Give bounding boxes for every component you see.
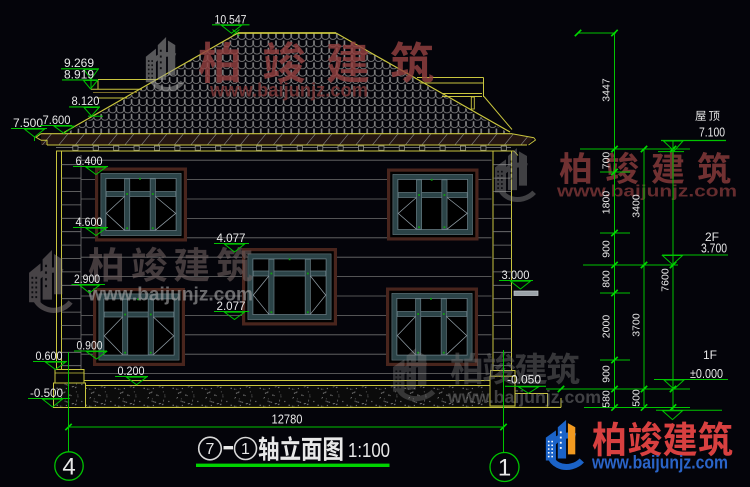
svg-text:1: 1 xyxy=(241,441,250,458)
svg-text:www.baijunjz.com: www.baijunjz.com xyxy=(209,80,368,102)
svg-text:3.700: 3.700 xyxy=(701,242,727,256)
svg-text:4: 4 xyxy=(62,454,75,481)
svg-text:2000: 2000 xyxy=(601,315,613,339)
svg-text:9.269: 9.269 xyxy=(64,58,94,70)
svg-text:7: 7 xyxy=(206,441,215,458)
svg-text:7600: 7600 xyxy=(660,268,672,292)
svg-text:7.100: 7.100 xyxy=(699,126,725,140)
svg-text:700: 700 xyxy=(601,152,613,170)
svg-text:580: 580 xyxy=(601,390,613,408)
svg-text:900: 900 xyxy=(601,365,613,383)
svg-text:3447: 3447 xyxy=(601,78,613,102)
svg-text:±0.000: ±0.000 xyxy=(690,367,723,381)
svg-text:900: 900 xyxy=(601,240,613,258)
svg-text:1: 1 xyxy=(498,455,511,482)
svg-text:3700: 3700 xyxy=(631,313,643,337)
svg-text:1:100: 1:100 xyxy=(348,440,390,462)
svg-text:800: 800 xyxy=(601,270,613,288)
svg-text:www.baijunjz.com: www.baijunjz.com xyxy=(591,452,728,473)
svg-text:12780: 12780 xyxy=(272,413,303,427)
svg-text:www.baijunjz.com: www.baijunjz.com xyxy=(556,182,737,201)
svg-text:500: 500 xyxy=(631,389,643,407)
svg-text:1F: 1F xyxy=(703,348,717,362)
svg-text:-0.050: -0.050 xyxy=(507,375,541,387)
svg-text:3400: 3400 xyxy=(631,194,643,218)
svg-text:1800: 1800 xyxy=(601,191,613,215)
